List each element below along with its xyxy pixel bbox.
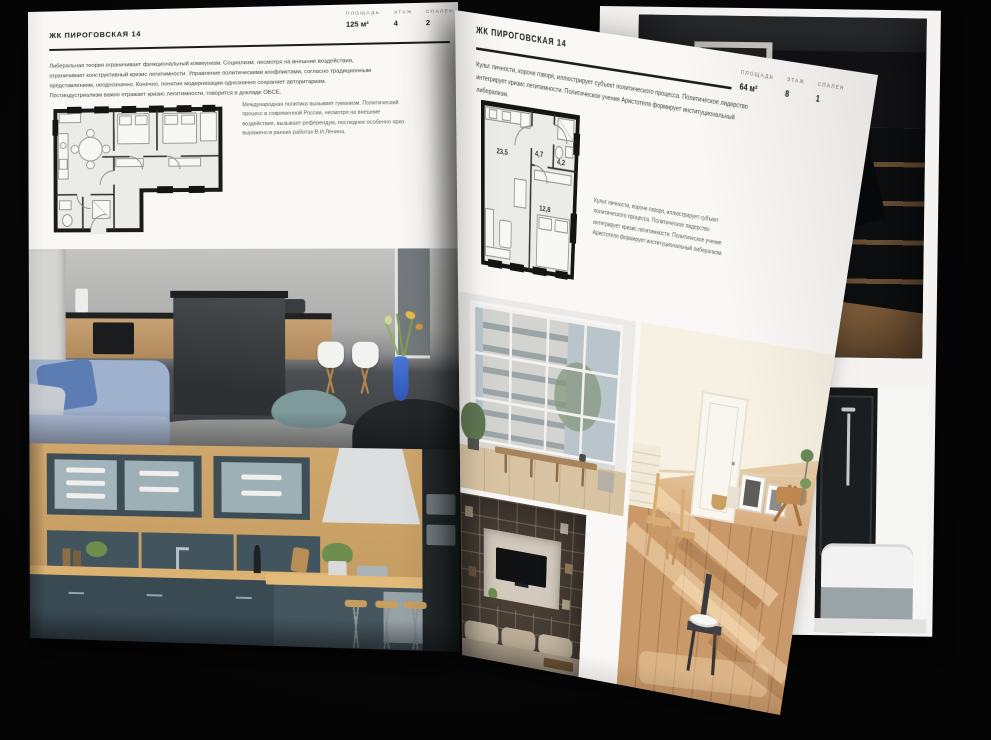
faucet-spout <box>176 547 189 550</box>
floorplan-125 <box>48 100 229 239</box>
grid-window <box>470 300 623 466</box>
magazine-spread-mockup: ЖК ПИРОГОВСКАЯ 14 ПЛОЩАДЬ 125 м² ЭТАЖ 4 … <box>0 0 991 740</box>
decor-shape <box>539 217 552 230</box>
dining-table <box>79 137 102 161</box>
stat-value: 125 м² <box>346 19 380 29</box>
coffee-machine <box>75 289 88 313</box>
sink <box>60 142 66 148</box>
bench-leg <box>530 459 532 478</box>
herb-plant <box>86 541 107 557</box>
cabinet <box>59 114 80 123</box>
stat-label: ПЛОЩАДЬ <box>346 11 380 17</box>
decor-shape <box>177 105 192 112</box>
stat-value: 8 <box>784 87 803 101</box>
decor-shape <box>87 161 95 169</box>
coffee-table <box>500 220 512 249</box>
backsplash-gap <box>234 534 237 570</box>
glass-door <box>221 462 301 514</box>
glass-door <box>125 460 194 511</box>
toilet <box>62 215 72 227</box>
door-knob <box>731 461 735 465</box>
decor-shape <box>157 186 173 193</box>
body-paragraph: Либеральная теория ограничивает функцион… <box>49 57 371 102</box>
leaning-frame <box>737 473 766 514</box>
wine-bottle <box>254 545 261 573</box>
bathroom-photo <box>814 387 929 634</box>
decor-shape <box>165 115 178 124</box>
frame-art <box>743 479 761 507</box>
tub-front-panel <box>820 587 912 620</box>
dish-stack <box>66 493 105 499</box>
loft-window-photo <box>458 291 636 516</box>
page-title: ЖК ПИРОГОВСКАЯ 14 <box>476 24 566 50</box>
cutting-board <box>290 547 309 574</box>
stat-label: СПАЛЕН <box>426 9 454 15</box>
decor-shape <box>120 116 132 125</box>
bathtub <box>821 543 914 592</box>
stem <box>403 318 413 356</box>
dresser <box>169 158 201 166</box>
edge-shade <box>29 443 45 638</box>
oven-window <box>426 525 455 546</box>
island-top <box>170 291 288 298</box>
glass-door <box>55 459 117 510</box>
bench-object <box>579 454 586 463</box>
stat-bedrooms: СПАЛЕН 2 <box>426 9 454 27</box>
decor-shape <box>189 186 205 193</box>
backsplash-gap <box>139 532 142 568</box>
stat-area: ПЛОЩАДЬ 125 м² <box>346 11 380 29</box>
flower-orange <box>416 324 423 330</box>
decor-shape <box>202 105 215 112</box>
decor-shape <box>555 220 568 233</box>
bench-leg <box>504 454 506 473</box>
page-title: ЖК ПИРОГОВСКАЯ 14 <box>49 29 141 40</box>
side-table <box>597 470 614 493</box>
photo-vignette <box>460 492 586 677</box>
decor-shape <box>182 115 195 124</box>
stat-value: 1 <box>815 92 843 108</box>
decor-shape <box>67 107 82 114</box>
stat-bedrooms: СПАЛЕН 1 <box>815 82 845 108</box>
room-label: 4,2 <box>557 157 565 168</box>
chair-legs <box>355 367 376 394</box>
decor-shape <box>52 120 58 136</box>
floorplan-caption: Международная политика вызывает гуманизм… <box>242 99 409 139</box>
jar <box>63 548 71 566</box>
stat-label: ЭТАЖ <box>786 77 805 86</box>
stat-value: 64 м² <box>739 80 773 97</box>
bath-sink <box>565 146 573 158</box>
room-label: 23,5 <box>497 146 508 157</box>
window-mullions <box>473 303 621 462</box>
dish-stack <box>139 471 178 477</box>
oven <box>93 322 134 354</box>
dish-stack <box>241 474 281 480</box>
wardrobe <box>200 113 216 141</box>
sink <box>489 109 496 119</box>
kitchen-living-photo <box>29 248 460 449</box>
stats-row: ПЛОЩАДЬ 125 м² ЭТАЖ 4 СПАЛЕН 2 <box>346 9 454 29</box>
dish-stack <box>66 467 105 473</box>
shower-head <box>841 407 855 411</box>
stat-value: 2 <box>426 17 454 27</box>
bath-sink <box>59 201 71 210</box>
decor-shape <box>135 116 147 125</box>
stove <box>502 111 510 121</box>
white-chair <box>317 342 343 368</box>
cabinet-handle <box>236 597 252 599</box>
stat-area: ПЛОЩАДЬ 64 м² <box>739 70 774 97</box>
decor-shape <box>71 145 79 153</box>
stat-value: 4 <box>394 18 413 28</box>
teal-kitchen-photo <box>29 443 460 652</box>
stat-floor: ЭТАЖ 4 <box>394 10 413 28</box>
dish-stack <box>241 490 281 496</box>
decor-shape <box>91 226 107 234</box>
kitchen-island <box>173 295 285 416</box>
oven-window <box>426 494 455 515</box>
white-chair <box>352 342 379 369</box>
basket <box>711 494 727 511</box>
faucet <box>176 547 179 569</box>
decor-shape <box>94 106 109 113</box>
left-page: ЖК ПИРОГОВСКАЯ 14 ПЛОЩАДЬ 125 м² ЭТАЖ 4 … <box>28 2 460 652</box>
stat-label: СПАЛЕН <box>817 82 845 93</box>
bath-floor <box>814 618 926 634</box>
dresser <box>116 159 143 167</box>
jar <box>73 551 81 567</box>
stats-row: ПЛОЩАДЬ 64 м² ЭТАЖ 8 СПАЛЕН 1 <box>739 70 845 108</box>
blue-vase <box>393 356 409 401</box>
flower-bud <box>385 316 392 325</box>
decor-shape <box>102 145 110 153</box>
saucepan <box>357 566 388 577</box>
dish-stack <box>66 480 105 486</box>
decor-shape <box>122 106 137 113</box>
room-label: 12,8 <box>539 203 550 214</box>
cabinet-handle <box>68 592 84 594</box>
shelving-tv-photo <box>460 492 586 677</box>
decor-shape <box>86 129 94 137</box>
floorplan-64: 23,5 4,7 4,2 12,8 <box>476 93 585 286</box>
table <box>514 179 526 209</box>
floorplan-caption: Культ личности, короче говоря, иллюстрир… <box>592 196 728 260</box>
stat-floor: ЭТАЖ 8 <box>784 77 805 102</box>
chair-legs <box>321 367 341 393</box>
header-rule <box>49 41 449 51</box>
cabinet-handle <box>147 594 163 596</box>
stat-label: ПЛОЩАДЬ <box>741 70 775 82</box>
decor-shape <box>570 213 577 243</box>
plant-pot <box>468 438 479 451</box>
flower-stems <box>379 313 424 358</box>
stat-label: ЭТАЖ <box>394 10 413 16</box>
sunlit-attic-photo <box>617 322 835 715</box>
room-label: 4,7 <box>535 149 543 160</box>
kitchen-counter <box>58 134 68 180</box>
dish-stack <box>139 487 178 493</box>
stove <box>59 159 67 169</box>
